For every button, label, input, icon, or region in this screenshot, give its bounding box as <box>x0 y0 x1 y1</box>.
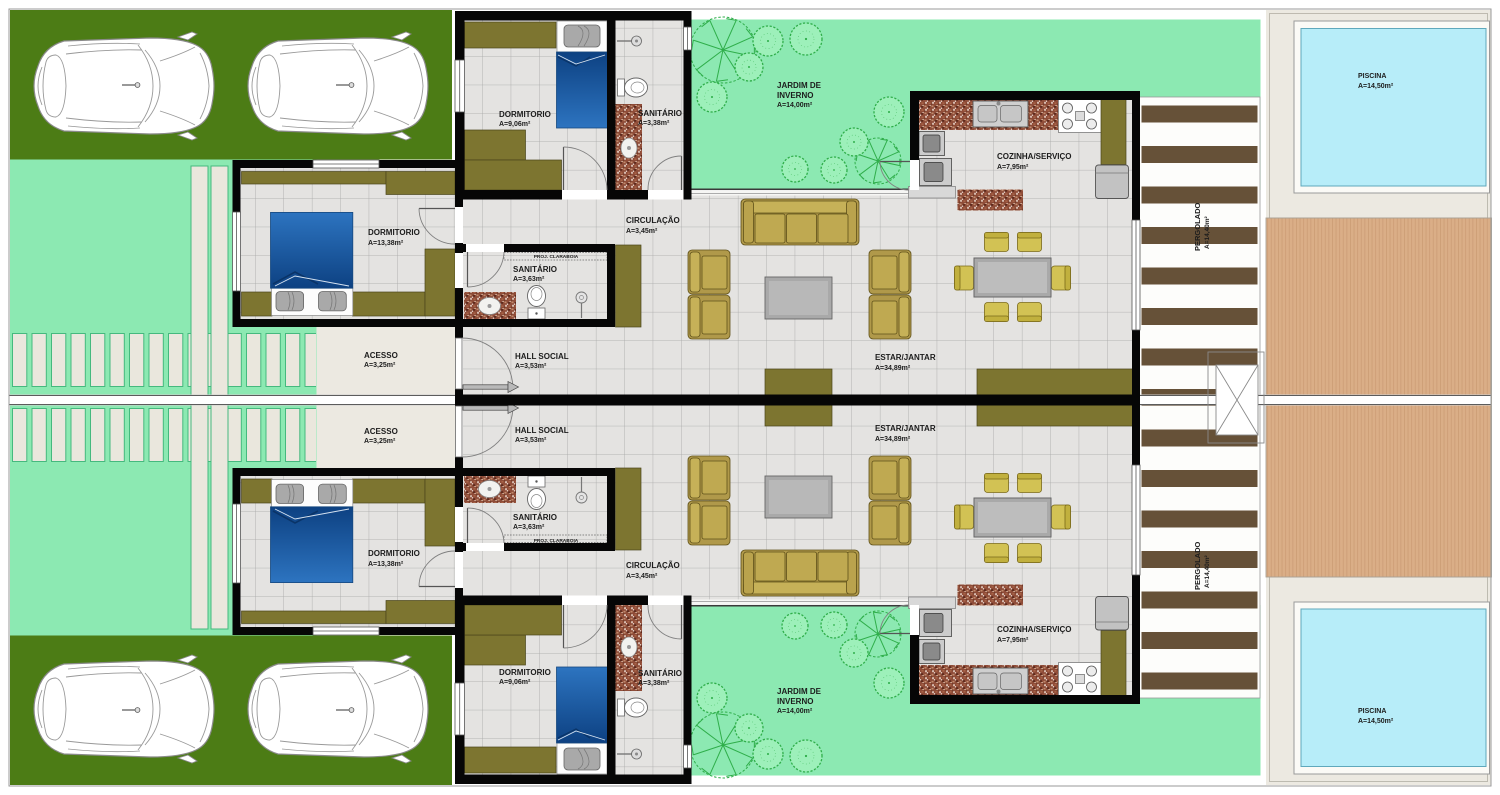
svg-text:CIRCULAÇÃO: CIRCULAÇÃO <box>626 216 680 225</box>
svg-text:A=3,38m²: A=3,38m² <box>638 120 670 127</box>
svg-text:A=34,89m²: A=34,89m² <box>875 365 911 372</box>
svg-text:ESTAR/JANTAR: ESTAR/JANTAR <box>875 424 936 433</box>
svg-text:A=9,06m²: A=9,06m² <box>499 121 531 128</box>
svg-text:INVERNO: INVERNO <box>777 697 813 706</box>
svg-text:A=3,53m²: A=3,53m² <box>515 363 547 370</box>
svg-text:A=13,38m²: A=13,38m² <box>368 240 404 247</box>
svg-text:A=3,25m²: A=3,25m² <box>364 362 396 369</box>
svg-text:ACESSO: ACESSO <box>364 351 398 360</box>
svg-text:A=3,53m²: A=3,53m² <box>515 437 547 444</box>
svg-text:JARDIM DE: JARDIM DE <box>777 81 822 90</box>
svg-text:A=13,38m²: A=13,38m² <box>368 561 404 568</box>
svg-text:A=14,50m²: A=14,50m² <box>1358 718 1394 725</box>
svg-text:PERGOLADO: PERGOLADO <box>1193 202 1202 251</box>
svg-text:A=3,38m²: A=3,38m² <box>638 680 670 687</box>
svg-text:SANITÁRIO: SANITÁRIO <box>513 265 557 274</box>
svg-text:COZINHA/SERVIÇO: COZINHA/SERVIÇO <box>997 625 1072 634</box>
svg-text:ESTAR/JANTAR: ESTAR/JANTAR <box>875 353 936 362</box>
svg-text:SANITÁRIO: SANITÁRIO <box>638 109 682 118</box>
svg-text:A=9,06m²: A=9,06m² <box>499 679 531 686</box>
svg-text:A=3,63m²: A=3,63m² <box>513 524 545 531</box>
svg-text:PROJ. CLARABOIA: PROJ. CLARABOIA <box>534 538 579 544</box>
svg-text:DORMITORIO: DORMITORIO <box>368 549 420 558</box>
svg-text:A=3,25m²: A=3,25m² <box>364 438 396 445</box>
svg-text:INVERNO: INVERNO <box>777 91 813 100</box>
svg-text:PISCINA: PISCINA <box>1358 708 1386 715</box>
svg-text:PISCINA: PISCINA <box>1358 73 1386 80</box>
svg-text:A=3,45m²: A=3,45m² <box>626 228 658 235</box>
svg-text:COZINHA/SERVIÇO: COZINHA/SERVIÇO <box>997 152 1072 161</box>
svg-text:ACESSO: ACESSO <box>364 427 398 436</box>
svg-text:SANITÁRIO: SANITÁRIO <box>513 513 557 522</box>
svg-text:HALL SOCIAL: HALL SOCIAL <box>515 352 569 361</box>
svg-text:A=3,63m²: A=3,63m² <box>513 276 545 283</box>
svg-text:JARDIM DE: JARDIM DE <box>777 687 822 696</box>
svg-text:HALL SOCIAL: HALL SOCIAL <box>515 426 569 435</box>
svg-text:A=14,40m²: A=14,40m² <box>1204 215 1211 249</box>
svg-text:A=7,95m²: A=7,95m² <box>997 637 1029 644</box>
svg-text:DORMITORIO: DORMITORIO <box>499 110 551 119</box>
svg-text:A=3,45m²: A=3,45m² <box>626 573 658 580</box>
svg-text:A=14,00m²: A=14,00m² <box>777 708 813 715</box>
svg-text:PERGOLADO: PERGOLADO <box>1193 541 1202 590</box>
svg-text:DORMITORIO: DORMITORIO <box>499 668 551 677</box>
svg-text:SANITÁRIO: SANITÁRIO <box>638 669 682 678</box>
svg-text:A=7,95m²: A=7,95m² <box>997 164 1029 171</box>
svg-text:CIRCULAÇÃO: CIRCULAÇÃO <box>626 561 680 570</box>
svg-text:A=14,00m²: A=14,00m² <box>777 102 813 109</box>
svg-text:A=14,40m²: A=14,40m² <box>1204 554 1211 588</box>
svg-text:A=34,89m²: A=34,89m² <box>875 436 911 443</box>
svg-text:A=14,50m²: A=14,50m² <box>1358 83 1394 90</box>
svg-text:PROJ. CLARABOIA: PROJ. CLARABOIA <box>534 254 579 260</box>
svg-text:DORMITORIO: DORMITORIO <box>368 228 420 237</box>
